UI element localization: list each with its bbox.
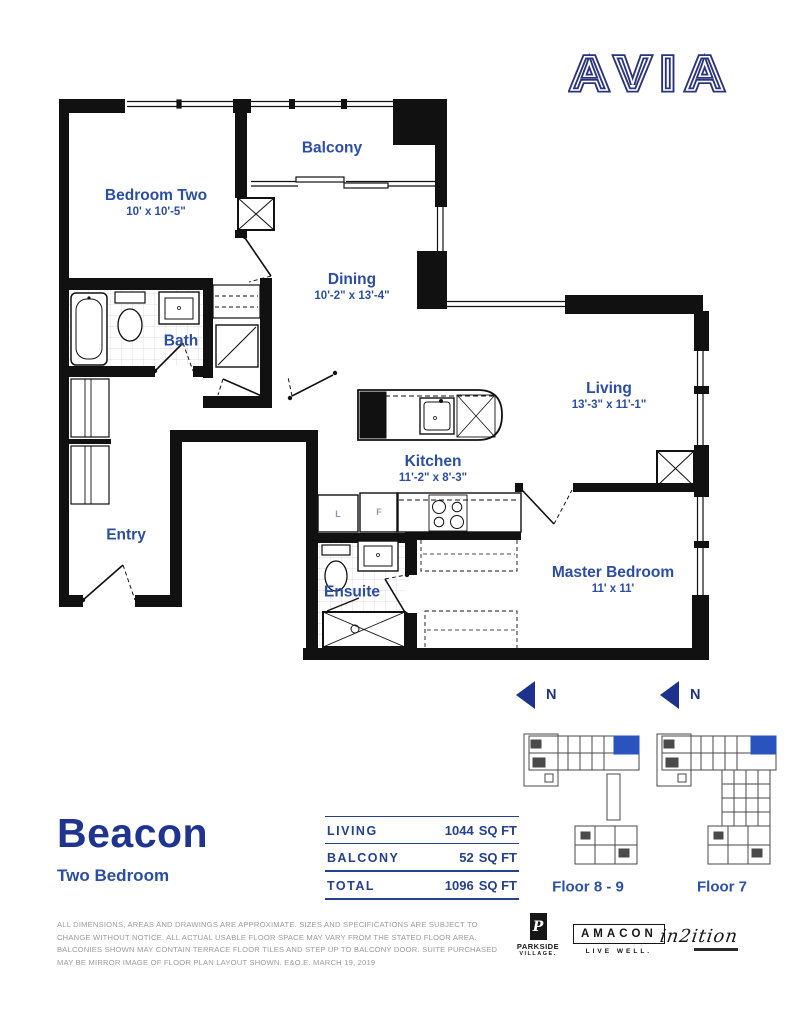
label-bath: Bath bbox=[164, 331, 198, 350]
label-balcony: Balcony bbox=[302, 138, 362, 157]
table-row: TOTAL 1096 SQ FT bbox=[325, 872, 519, 900]
windows bbox=[127, 100, 703, 595]
floor-plan: Bedroom Two 10' x 10'-5" Balcony Dining … bbox=[55, 95, 715, 670]
north-arrow-icon bbox=[516, 681, 535, 709]
in2ition-tagline-bar bbox=[694, 948, 738, 951]
floor-range-label-a: Floor 8 - 9 bbox=[552, 879, 624, 896]
label-living: Living 13'-3" x 11'-1" bbox=[572, 379, 647, 413]
north-arrow-b: N bbox=[660, 681, 700, 709]
svg-text:AVIA: AVIA bbox=[570, 48, 734, 101]
label-ensuite: Ensuite bbox=[324, 582, 380, 601]
parkside-village-logo: P PARKSIDE VILLAGE. bbox=[511, 913, 565, 957]
north-arrow-a: N bbox=[516, 681, 556, 709]
label-kitchen: Kitchen 11'-2" x 8'-3" bbox=[399, 452, 467, 486]
label-bedroom-two: Bedroom Two 10' x 10'-5" bbox=[105, 186, 207, 220]
label-fridge: F bbox=[376, 507, 382, 517]
label-master-bedroom: Master Bedroom 11' x 11' bbox=[552, 563, 674, 597]
label-dining: Dining 10'-2" x 13'-4" bbox=[314, 270, 389, 304]
label-linen-closet: L bbox=[335, 509, 341, 519]
unit-type: Two Bedroom bbox=[57, 866, 169, 886]
amacon-logo: AMACON LIVE WELL. bbox=[573, 924, 665, 955]
north-arrow-icon bbox=[660, 681, 679, 709]
table-row: LIVING 1044 SQ FT bbox=[325, 817, 519, 844]
table-row: BALCONY 52 SQ FT bbox=[325, 844, 519, 872]
area-stats-table: LIVING 1044 SQ FT BALCONY 52 SQ FT TOTAL… bbox=[325, 816, 519, 900]
keyplan-floor-7 bbox=[656, 732, 782, 873]
floorplan-page: AVIA AVIA bbox=[0, 0, 791, 1024]
unit-name: Beacon bbox=[57, 810, 208, 857]
parkside-p-icon: P bbox=[530, 913, 547, 940]
label-entry: Entry bbox=[106, 525, 146, 544]
north-label: N bbox=[690, 687, 700, 703]
keyplan-floor-8-9 bbox=[523, 732, 645, 873]
disclaimer-text: ALL DIMENSIONS, AREAS AND DRAWINGS ARE A… bbox=[57, 919, 507, 969]
north-label: N bbox=[546, 687, 556, 703]
in2ition-logo: in2ition bbox=[660, 926, 738, 951]
floor-range-label-b: Floor 7 bbox=[697, 879, 747, 896]
